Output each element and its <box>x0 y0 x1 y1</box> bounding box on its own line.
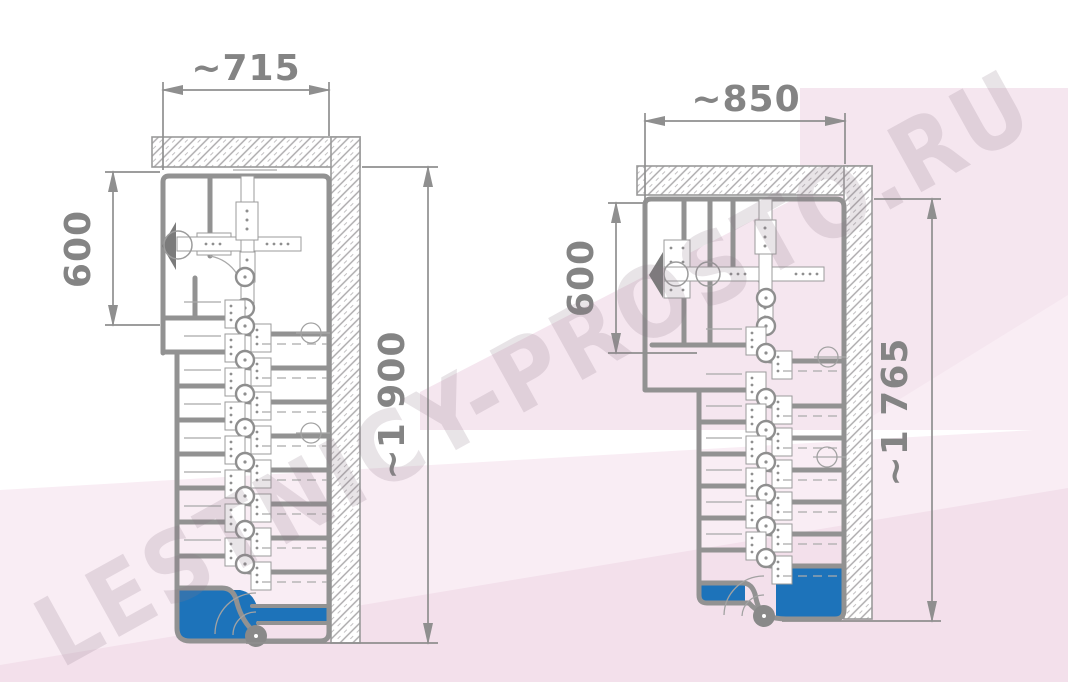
staircase-plans-canvas: ~715 600 ~1 900 <box>0 0 1068 682</box>
right-plan-length-dimension-label: ~1 765 <box>875 338 916 487</box>
right-plan-width-dimension-label: ~850 <box>691 79 800 120</box>
left-plan-top-wall <box>152 137 360 167</box>
left-plan-right-wall <box>331 137 360 643</box>
left-plan-width-dimension-label: ~715 <box>191 48 300 89</box>
staircase-drawing-page: ~715 600 ~1 900 <box>0 0 1068 682</box>
left-plan-entry-depth-dimension-label: 600 <box>58 210 99 288</box>
